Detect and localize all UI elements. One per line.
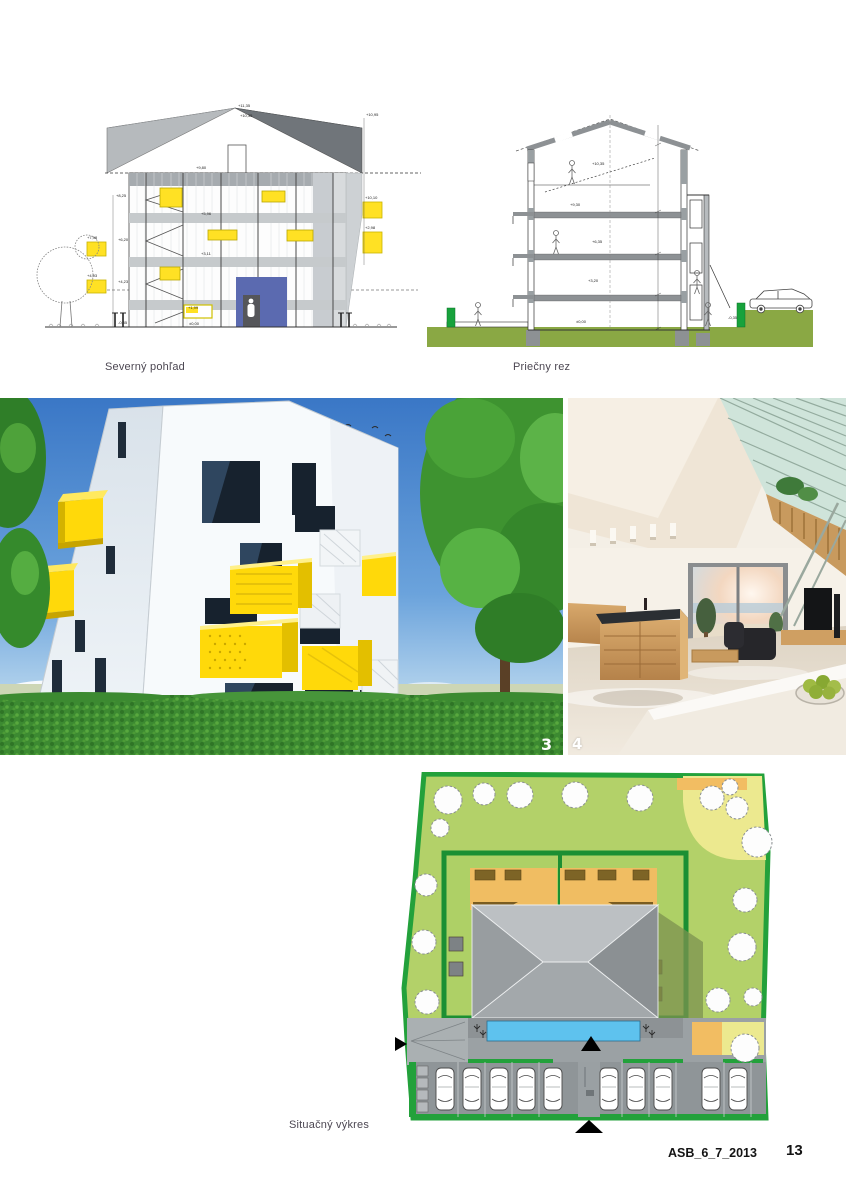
left-balcony-top (58, 490, 108, 549)
pool (487, 1021, 640, 1041)
interior-render (568, 398, 846, 755)
dim-label: +11,35 (238, 103, 251, 108)
entry-arrow-south (575, 1120, 603, 1133)
section-figure: +10,35 +9,30 +6,35 +3,20 ±0,00 -0,35 (420, 95, 846, 353)
dim-label: +4,93 (87, 273, 98, 278)
interior-render-figure (568, 398, 846, 755)
annex-openings (690, 200, 702, 320)
roof-band (527, 122, 690, 149)
dim-label: ±0,00 (576, 319, 587, 324)
tree-trunks (60, 301, 72, 327)
dim-label: -0,35 (118, 320, 128, 325)
photo-number-badge: 4 (572, 735, 582, 753)
building-roof (472, 905, 658, 1018)
dim-label: -0,35 (728, 315, 738, 320)
photo-number-badge: 3 (541, 735, 552, 754)
car-sketch (750, 289, 812, 313)
dim-label: +5,96 (201, 211, 212, 216)
dim-label: +3,11 (201, 251, 212, 256)
siteplan-figure (393, 772, 846, 1134)
dim-label: +10,10 (365, 195, 378, 200)
dim-label: +2,98 (365, 225, 376, 230)
hedge (0, 695, 563, 755)
hedge-right (737, 303, 745, 327)
dim-label: +10,35 (240, 113, 253, 118)
dim-label: +6,35 (592, 239, 603, 244)
section-drawing: +10,35 +9,30 +6,35 +3,20 ±0,00 -0,35 (420, 95, 846, 353)
dim-label: +9,30 (570, 202, 581, 207)
terrace-deck (447, 322, 528, 327)
dim-label: +9,80 (196, 165, 207, 170)
parking (409, 1059, 766, 1118)
section-caption: Priečny rez (513, 361, 570, 373)
siteplan-drawing (393, 772, 846, 1134)
dim-label: +10,95 (366, 112, 379, 117)
chimney (228, 145, 246, 173)
hedge-left (447, 308, 455, 327)
dim-label: +3,20 (588, 278, 599, 283)
floor-slabs (534, 212, 681, 301)
elevation-caption: Severný pohľad (105, 361, 185, 373)
footer-page-number: 13 (786, 1142, 803, 1159)
dim-label: +4,23 (118, 279, 129, 284)
dim-label: +1,99 (188, 305, 199, 310)
exterior-render (0, 398, 563, 755)
dim-label: +10,35 (592, 161, 605, 166)
siteplan-caption: Situačný výkres (289, 1119, 369, 1131)
elevation-drawing: +11,35 +10,35 +10,95 +9,80 +8,25 +7,98 +… (25, 95, 435, 345)
dim-label: +6,20 (118, 237, 129, 242)
footer-issue-reference: ASB_6_7_2013 (668, 1146, 757, 1160)
dim-label: +7,98 (87, 235, 98, 240)
dim-label: ±0,00 (189, 321, 200, 326)
magazine-page: +11,35 +10,35 +10,95 +9,80 +8,25 +7,98 +… (0, 0, 846, 1180)
section-ground (427, 310, 813, 347)
exterior-render-figure (0, 398, 563, 755)
dim-label: +8,25 (116, 193, 127, 198)
entrance (236, 277, 287, 327)
elevation-figure: +11,35 +10,35 +10,95 +9,80 +8,25 +7,98 +… (25, 95, 435, 345)
